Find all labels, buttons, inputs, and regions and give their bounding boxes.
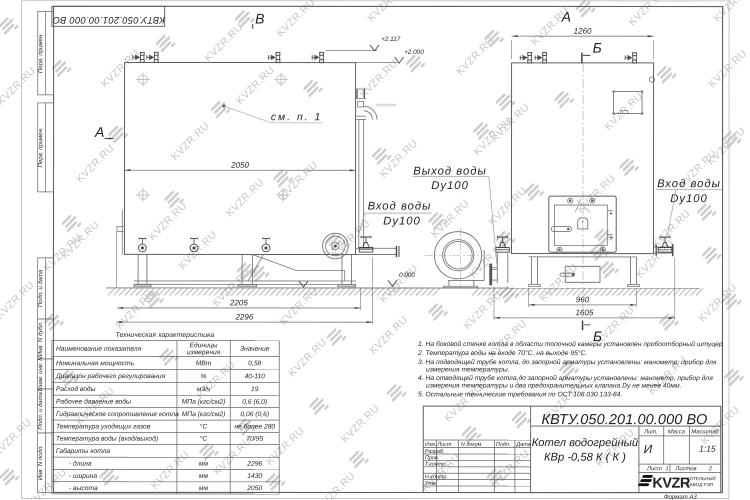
svg-text:м3/ч: м3/ч [197,386,211,393]
svg-text:40-110: 40-110 [245,373,266,380]
svg-text:0,6 (6,0): 0,6 (6,0) [242,399,267,406]
svg-text:см. п. 1: см. п. 1 [271,112,322,123]
svg-text:KVZR.RU: KVZR.RU [169,120,212,163]
svg-text:Лист: Лист [436,442,451,448]
svg-text:KVZR.RU: KVZR.RU [176,229,219,272]
svg-text:KVZR.RU: KVZR.RU [202,21,245,64]
svg-text:1: 1 [665,466,668,472]
svg-text:В: В [255,10,264,26]
svg-text:КВТУ.050.201.00.000 ВО: КВТУ.050.201.00.000 ВО [52,15,165,26]
svg-text:%: % [201,373,207,380]
svg-text:Формат А3: Формат А3 [664,495,697,500]
svg-text:Габариты котла: Габариты котла [56,447,110,455]
svg-text:KVZR.RU: KVZR.RU [575,172,618,215]
svg-text:КВТУ.050.201.00.000 ВО: КВТУ.050.201.00.000 ВО [541,412,707,428]
svg-text:Дата: Дата [515,442,530,448]
svg-text:Масштаб: Масштаб [691,429,719,435]
svg-text:Вход воды: Вход воды [368,200,432,212]
svg-text:Б: Б [593,40,602,56]
svg-text:KVZR.RU: KVZR.RU [74,142,117,185]
svg-text:Масса: Масса [668,429,686,435]
svg-text:2050: 2050 [246,485,262,492]
svg-text:3. На подводящей трубе котла,: 3. На подводящей трубе котла, до запорно… [418,358,717,366]
svg-text:Лит.: Лит. [643,429,658,435]
svg-text:1:15: 1:15 [699,444,716,454]
svg-text:KVZR.RU: KVZR.RU [149,449,192,492]
svg-text:не более 280: не более 280 [234,423,275,431]
svg-text:Единицы: Единицы [190,341,218,349]
svg-text:0,06 (0,6): 0,06 (0,6) [240,411,269,418]
svg-text:KVZR.RU: KVZR.RU [0,416,34,459]
svg-text:Подп. и дата: Подп. и дата [38,269,44,307]
svg-text:0.000: 0.000 [399,272,415,279]
svg-text:- ширина: - ширина [69,473,97,480]
svg-text:2050: 2050 [230,161,249,170]
svg-text:KVZR.RU: KVZR.RU [41,231,84,274]
svg-text:KVZR.RU: KVZR.RU [26,466,69,500]
svg-text:Взам. инв. N: Взам. инв. N [38,356,44,392]
svg-text:ЗАВОД РЭП: ЗАВОД РЭП [687,482,713,487]
svg-text:Изм.: Изм. [425,442,437,448]
svg-text:KVZR.RU: KVZR.RU [99,47,142,90]
svg-text:KVZR.RU: KVZR.RU [429,197,472,240]
svg-text:Наименование показателя: Наименование показателя [56,346,142,353]
svg-text:Техническая характеристика: Техническая характеристика [115,332,214,339]
svg-text:1. На боковой стенке котла в: 1. На боковой стенке котла в области топ… [418,340,723,348]
svg-text:2: 2 [708,466,713,472]
svg-text:мм: мм [199,461,209,468]
svg-text:KVZR.RU: KVZR.RU [367,314,410,357]
svg-text:N докум.: N докум. [461,442,483,448]
svg-text:Значение: Значение [240,346,270,353]
svg-text:KVZR.RU: KVZR.RU [365,0,408,24]
svg-text:70/95: 70/95 [246,436,263,443]
svg-text:измерения: измерения [187,349,221,356]
svg-text:измерения температуры и два пр: измерения температуры и два предохраните… [426,382,682,390]
svg-text:2296: 2296 [246,461,262,468]
svg-text:Температура уходящих газов: Температура уходящих газов [56,422,151,430]
svg-text:КОТЕЛЬНЫЙ: КОТЕЛЬНЫЙ [687,474,716,481]
svg-text:KVZR.RU: KVZR.RU [286,336,329,379]
svg-text:Лист: Лист [646,466,662,472]
svg-text:960: 960 [576,295,590,304]
svg-text:°С: °С [200,435,208,443]
svg-text:KVZR.RU: KVZR.RU [461,289,504,332]
svg-text:1430: 1430 [247,473,262,480]
svg-text:МПа (кгс/см2): МПа (кгс/см2) [182,411,226,418]
svg-text:KVZR.RU: KVZR.RU [0,65,38,108]
svg-text:1605: 1605 [575,308,593,317]
svg-text:Расход воды: Расход воды [56,385,96,393]
svg-text:И: И [644,442,653,456]
svg-text:Утв.: Утв. [424,481,437,487]
svg-text:1260: 1260 [574,27,592,36]
svg-text:KVZR.RU: KVZR.RU [339,402,382,445]
svg-text:4. На отводящей трубе котла,д: 4. На отводящей трубе котла,до запорной … [418,374,713,382]
svg-text:МВт: МВт [196,360,212,367]
svg-text:Подп. и дата: Подп. и дата [38,391,44,429]
svg-text:Гидравлическое сопротивление к: Гидравлическое сопротивление котла [56,410,179,418]
svg-text:KVZR.RU: KVZR.RU [264,425,307,468]
svg-text:мм: мм [199,473,209,480]
svg-text:Подп.: Подп. [496,442,510,448]
svg-text:0,58: 0,58 [248,360,261,367]
svg-text:2296: 2296 [234,313,253,322]
svg-text:мм: мм [199,485,209,492]
svg-text:Перв. примен.: Перв. примен. [38,127,44,167]
svg-text:°С: °С [200,423,208,431]
svg-text:КВр -0,58 К ( К ): КВр -0,58 К ( К ) [544,452,626,464]
svg-text:Котел водогрейный: Котел водогрейный [532,437,638,449]
svg-text:Т.контр.: Т.контр. [425,462,447,468]
svg-text:А: А [94,124,104,140]
svg-text:19: 19 [251,386,259,393]
svg-text:Вход воды: Вход воды [657,178,721,190]
svg-text:Н.контр.: Н.контр. [425,474,448,480]
svg-text:KVZR.RU: KVZR.RU [602,90,645,133]
svg-text:Инв. N дубл.: Инв. N дубл. [38,322,44,357]
svg-text:Рабочее давление воды: Рабочее давление воды [56,398,131,406]
svg-text:МПа (кгс/см2): МПа (кгс/см2) [182,399,226,406]
svg-text:Dy100: Dy100 [431,180,469,192]
svg-text:Пров.: Пров. [425,455,439,461]
svg-text:KVZR.RU: KVZR.RU [234,64,277,107]
svg-text:Температура воды (вход/выход): Температура воды (вход/выход) [56,435,158,443]
svg-text:Листов: Листов [674,466,696,472]
svg-text:+2.117: +2.117 [381,36,401,43]
svg-text:Dy100: Dy100 [383,216,421,228]
svg-text:KVZR: KVZR [652,476,691,492]
svg-text:А: А [561,9,571,25]
svg-text:KVZR.RU: KVZR.RU [711,0,750,25]
svg-text:KVZR.RU: KVZR.RU [377,262,420,305]
svg-text:Перв. примен.: Перв. примен. [38,33,44,73]
svg-text:Диапазон рабочего регулировани: Диапазон рабочего регулирования [55,372,166,380]
svg-text:5. Остальные технические треб: 5. Остальные технические требования по О… [418,390,622,398]
svg-text:Инв. N подл.: Инв. N подл. [38,445,44,480]
svg-text:Dy100: Dy100 [670,193,708,205]
svg-text:Выход воды: Выход воды [413,166,487,178]
svg-text:измерения температуры.: измерения температуры. [426,367,510,374]
svg-text:2. Температура воды на входе: 2. Температура воды на входе 70°С, на вы… [417,349,587,357]
svg-text:- длина: - длина [69,460,92,468]
svg-text:KVZR.RU: KVZR.RU [626,0,669,28]
svg-text:KVZR.RU: KVZR.RU [706,47,749,90]
svg-text:KVZR.RU: KVZR.RU [315,470,358,500]
svg-text:Разраб.: Разраб. [425,449,445,455]
svg-text:2205: 2205 [229,298,248,307]
svg-text:KVZR.RU: KVZR.RU [224,176,267,219]
svg-text:+2.000: +2.000 [404,49,424,56]
svg-text:KVZR.RU: KVZR.RU [146,200,189,243]
svg-text:- высота: - высота [69,485,98,492]
svg-text:KVZR.RU: KVZR.RU [489,101,532,144]
svg-text:KVZR.RU: KVZR.RU [537,261,580,304]
svg-text:Номинальная мощность: Номинальная мощность [56,360,135,367]
svg-text:KVZR.RU: KVZR.RU [0,279,37,322]
